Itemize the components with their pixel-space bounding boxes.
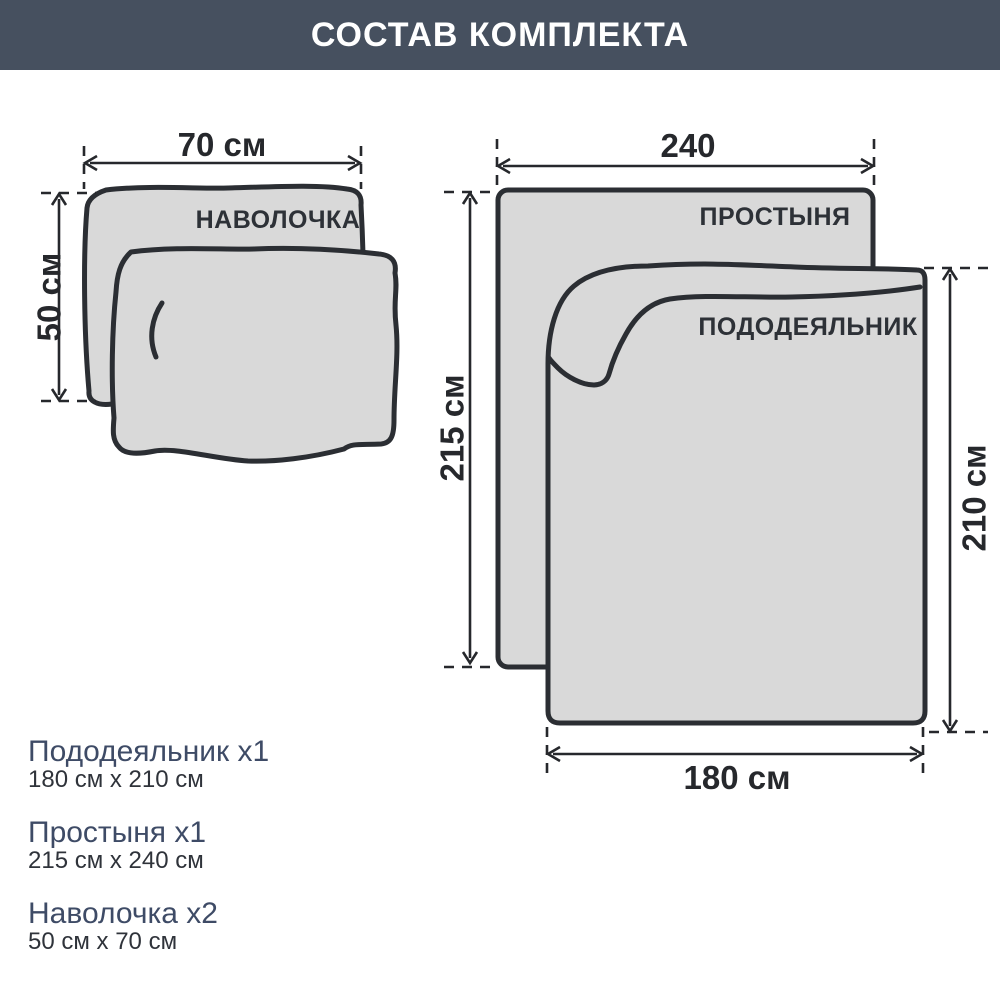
sheet-label: ПРОСТЫНЯ (700, 203, 851, 231)
duvet-figure: ПОДОДЕЯЛЬНИК (548, 264, 925, 723)
pillow-figure: НАВОЛОЧКА (85, 186, 397, 461)
list-item-duvet-size: 180 см x 210 см (28, 766, 204, 794)
list-item-sheet-name: Простыня х1 (28, 816, 206, 850)
dimension-sheet-height: 215 см (434, 192, 498, 667)
dimension-duvet-width: 180 см (547, 727, 923, 796)
dimension-duvet-height: 210 см (924, 268, 993, 732)
duvet-height-value: 210 см (956, 445, 993, 552)
duvet-width-value: 180 см (684, 759, 791, 796)
list-item-pillowcase-size: 50 см x 70 см (28, 928, 177, 956)
dimension-sheet-width: 240 (497, 127, 874, 188)
pillowcase-label: НАВОЛОЧКА (196, 206, 361, 234)
infographic-page: СОСТАВ КОМПЛЕКТА ПРОСТЫНЯ ПОДОДЕЯЛЬНИК Н… (0, 0, 1000, 1000)
dimension-pillow-width: 70 см (84, 126, 361, 189)
sheet-width-value: 240 (660, 127, 715, 164)
pillow-width-value: 70 см (178, 126, 267, 163)
duvet-label: ПОДОДЕЯЛЬНИК (698, 313, 917, 341)
list-item-pillowcase-name: Наволочка х2 (28, 897, 218, 931)
list-item-sheet-size: 215 см x 240 см (28, 847, 204, 875)
sheet-height-value: 215 см (434, 375, 471, 482)
pillow-height-value: 50 см (31, 253, 68, 342)
list-item-duvet-name: Пододеяльник х1 (28, 735, 269, 769)
